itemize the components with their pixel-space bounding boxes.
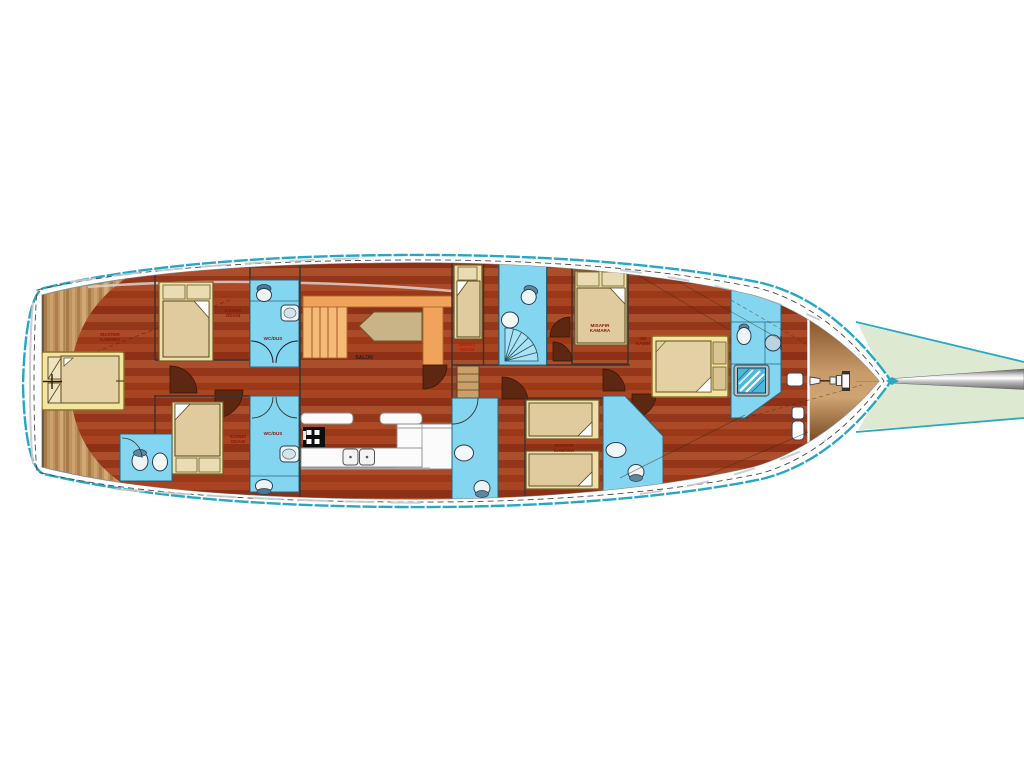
svg-text:WC/DUS: WC/DUS — [264, 336, 283, 341]
svg-text:ODASI: ODASI — [226, 313, 241, 318]
svg-text:ODASI: ODASI — [460, 347, 475, 352]
svg-text:WC/DUS: WC/DUS — [264, 431, 283, 436]
svg-text:SALON: SALON — [355, 355, 373, 361]
svg-text:KABIN: KABIN — [636, 341, 651, 346]
svg-text:KAMARA: KAMARA — [100, 337, 121, 342]
svg-text:ODASI: ODASI — [231, 439, 246, 444]
svg-text:KAMARA: KAMARA — [590, 328, 611, 333]
svg-text:KAMARA: KAMARA — [554, 448, 575, 453]
